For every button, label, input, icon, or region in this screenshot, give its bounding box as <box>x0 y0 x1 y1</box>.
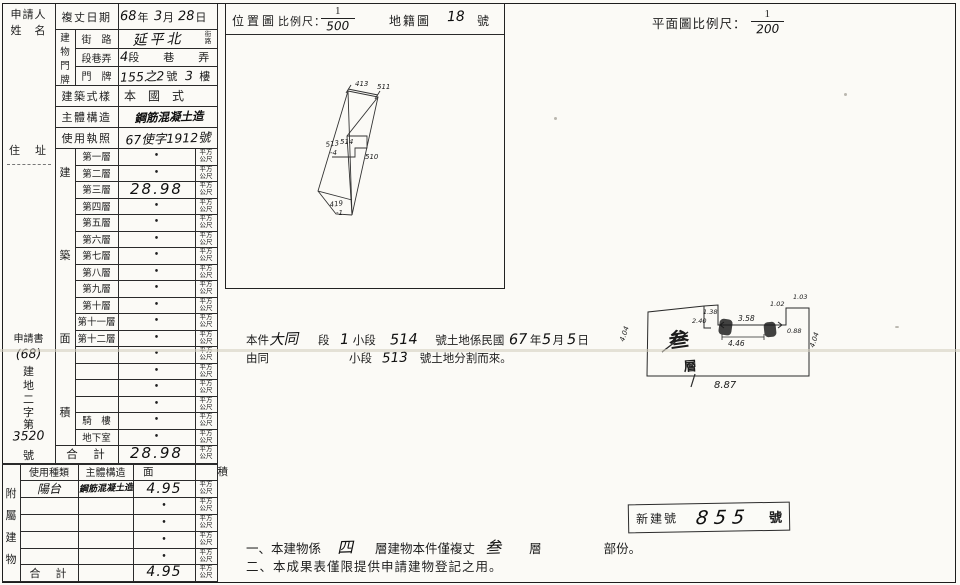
handwritten-entry: 155之2 <box>120 65 165 86</box>
unit-line2: 公尺 <box>195 404 217 411</box>
unit-line1: 平方 <box>195 199 217 206</box>
dimension-label: 8.87 <box>714 380 737 391</box>
area-unit: 平方公尺 <box>195 380 217 395</box>
survey-date-value: 68年3月28日 <box>120 4 218 29</box>
unit-line1: 平方 <box>195 298 217 305</box>
floor-row-label: 第六層 <box>75 231 118 248</box>
area-unit: 平方公尺 <box>195 430 217 445</box>
printed-text: 小段 <box>353 332 376 348</box>
footnote-1: 一、本建物係四層建物本件僅複丈叁層部份。 <box>246 534 641 558</box>
printed-text: 由同 <box>246 350 269 366</box>
footnote-2: 二、本成果表僅限提供申請建物登記之用。 <box>246 556 503 575</box>
floor-row-label: 第十層 <box>75 297 118 314</box>
scale-numerator: 1 <box>321 5 355 19</box>
handwritten-entry: 5 <box>567 332 577 348</box>
street-label: 街 路 <box>75 29 118 48</box>
stamp-label: 新建號 <box>636 510 678 528</box>
area-unit: 平方公尺 <box>195 166 217 181</box>
area-unit: 平方公尺 <box>195 498 217 513</box>
dimension-label: 0.88 <box>787 327 801 335</box>
annex-area-header-left: 面 <box>143 464 154 479</box>
parcel-origin-note-line1: 本件大同段1小段514號土地係民國67年5月5日 <box>246 328 589 346</box>
unit-line2: 公尺 <box>195 338 217 345</box>
unit-line2: 公尺 <box>195 305 217 312</box>
printed-text: 小段 <box>349 350 372 366</box>
table-rule <box>55 85 218 86</box>
handwritten-entry: 3 <box>185 68 193 83</box>
floor-row-label: 第九層 <box>75 280 118 297</box>
printed-text: 本件 <box>246 332 269 348</box>
area-unit: 平方公尺 <box>195 331 217 346</box>
cadastral-sheet-number: 18 <box>447 9 465 26</box>
printed-text: 樓 <box>199 68 210 84</box>
door-number-value: 155之2號3樓 <box>120 66 218 85</box>
area-unit: 平方公尺 <box>195 515 217 530</box>
handwritten-entry: 513 <box>382 350 408 367</box>
unit-line2: 公尺 <box>195 206 217 213</box>
table-rule <box>55 29 218 30</box>
floor-plan-scale: 平面圖比例尺： 1 200 <box>652 8 784 36</box>
parcel-origin-note-line2: 由同小段513號土地分割而來。 <box>246 350 512 366</box>
annex-use-value: 陽台 <box>20 479 79 498</box>
building-style-value: 本 國 式 <box>120 85 222 106</box>
total-value: 28.98 <box>118 443 195 463</box>
area-unit: 平方公尺 <box>195 413 217 428</box>
floor-plan-scale-label: 平面圖比例尺： <box>652 13 747 32</box>
door-plate-label-char: 門 <box>60 58 70 72</box>
street-unit-line2: 路 <box>199 38 217 45</box>
printed-text: 一、本建物係 <box>246 538 321 557</box>
area-unit: 平方公尺 <box>195 532 217 547</box>
street-unit: 街 路 <box>199 31 217 45</box>
area-unit: 平方公尺 <box>195 481 217 496</box>
area-unit: 平方公尺 <box>195 397 217 412</box>
handwritten-entry: 四 <box>337 534 354 559</box>
annex-area-header-right: 積 <box>218 464 229 479</box>
handwritten-entry: 3 <box>153 9 162 24</box>
dimension-label: 3.58 <box>738 314 755 323</box>
handwritten-entry: 叁 <box>485 534 502 559</box>
table-rule <box>55 106 218 107</box>
area-unit: 平方公尺 <box>195 549 217 564</box>
floor-area-empty-dot: • <box>118 427 195 446</box>
handwritten-entry: 4 <box>120 49 129 64</box>
printed-text: 月 <box>553 332 565 348</box>
printed-text: 日 <box>195 9 206 25</box>
area-unit: 平方公尺 <box>195 565 217 580</box>
unit-line2: 公尺 <box>195 522 217 529</box>
table-rule <box>75 48 218 49</box>
unit-line2: 公尺 <box>195 173 217 180</box>
stamp-suffix: 號 <box>769 507 782 526</box>
printed-text: 部份。 <box>604 538 642 557</box>
unit-line2: 公尺 <box>195 239 217 246</box>
unit-line2: 公尺 <box>195 437 217 444</box>
area-unit: 平方公尺 <box>195 265 217 280</box>
area-unit: 平方公尺 <box>195 446 217 462</box>
unit-line2: 公尺 <box>195 539 217 546</box>
area-unit: 平方公尺 <box>195 149 217 164</box>
printed-text: 日 <box>577 332 589 348</box>
floor-row-label: 騎 樓 <box>75 412 118 429</box>
floor-row-label: 第三層 <box>75 181 118 198</box>
parcel-number: 510 <box>365 153 379 161</box>
plan-scale-numerator: 1 <box>751 8 785 22</box>
unit-line2: 公尺 <box>195 288 217 295</box>
table-rule <box>2 463 218 465</box>
cadastral-sketch: 413511513-4514510419-1 <box>311 76 403 226</box>
annex-side-char: 物 <box>2 551 20 567</box>
annex-structure-value: 鋼筋混凝土造 <box>76 477 137 498</box>
applicant-label-line1: 申請人 <box>4 8 53 24</box>
total-label: 合 計 <box>55 445 118 463</box>
printed-text: 弄 <box>198 49 209 65</box>
printed-text: 段 <box>128 49 139 65</box>
area-unit: 平方公尺 <box>195 298 217 313</box>
location-map-panel: 位置圖 比例尺： 1 500 地籍圖 18 號 413511513-451451… <box>225 3 505 289</box>
area-unit: 平方公尺 <box>195 248 217 263</box>
area-unit: 平方公尺 <box>195 199 217 214</box>
area-unit: 平方公尺 <box>195 364 217 379</box>
parcel-number: -1 <box>336 209 343 217</box>
parcel-number: 419 <box>329 199 344 209</box>
cadastral-map-label: 地籍圖 <box>389 12 431 29</box>
floor-row-label: 第十二層 <box>75 330 118 347</box>
unit-line2: 公尺 <box>195 222 217 229</box>
floor-row-label: 第十一層 <box>75 313 118 330</box>
unit-line2: 公尺 <box>195 387 217 394</box>
parcel-number: 413 <box>355 80 368 88</box>
scan-speck <box>895 326 899 328</box>
location-map-title: 位置圖 <box>232 12 277 29</box>
annex-side-char: 附 <box>2 485 20 501</box>
plan-scale-denominator: 200 <box>750 21 784 37</box>
building-style-label: 建築式樣 <box>55 85 118 106</box>
parcel-outline <box>318 85 380 215</box>
handwritten-entry: 514 <box>389 332 417 349</box>
floor-plan-drawing: 2.401.383.581.021.030.884.468.874.044.04… <box>618 290 828 392</box>
area-unit: 平方公尺 <box>195 182 217 197</box>
printed-text: 層建物本件僅複丈 <box>375 538 475 557</box>
survey-date-label: 複丈日期 <box>55 4 118 29</box>
section-lane-value: 4段巷弄 <box>120 48 216 66</box>
unit-line1: 平方 <box>195 331 217 338</box>
floor-row-label: 第七層 <box>75 247 118 264</box>
stamp-number: 855 <box>695 506 752 529</box>
area-unit: 平方公尺 <box>195 232 217 247</box>
location-map-scale-fraction: 1 500 <box>321 5 355 33</box>
floor-area-side-char: 築 <box>55 247 75 263</box>
unit-line1: 平方 <box>195 265 217 272</box>
applicant-name-label: 申請人 姓 名 <box>4 8 53 40</box>
floor-row-label: 地下室 <box>75 429 118 446</box>
dimension-label: 1.38 <box>703 308 717 316</box>
unit-line1: 平方 <box>195 166 217 173</box>
unit-line1: 平方 <box>195 232 217 239</box>
annex-area-header: 面 積 <box>133 463 238 480</box>
dimension-label: 4.04 <box>618 325 630 342</box>
annex-side-char: 屬 <box>2 507 20 523</box>
street-value: 延平北 <box>120 28 197 50</box>
printed-text: 號 <box>166 68 177 84</box>
floor-plan-scale-fraction: 1 200 <box>751 8 785 36</box>
unit-line2: 公尺 <box>195 255 217 262</box>
printed-text: 年 <box>138 9 149 25</box>
unit-line2: 公尺 <box>195 321 217 328</box>
printed-text: 號土地分割而來。 <box>420 350 512 366</box>
doc-number-part: 3520 <box>2 427 55 444</box>
handwritten-entry: 28 <box>178 9 195 25</box>
printed-text: 號土地係民國 <box>435 332 504 348</box>
floor-stamp-level-character: 層 <box>683 359 697 375</box>
table-rule <box>217 4 218 582</box>
annex-side-char: 建 <box>2 529 20 545</box>
printed-text: 層 <box>529 538 542 557</box>
area-unit: 平方公尺 <box>195 314 217 329</box>
parcel-number: 513 <box>325 139 339 149</box>
scan-speck <box>554 117 557 120</box>
floor-row-label: 第五層 <box>75 214 118 231</box>
unit-line1: 平方 <box>195 364 217 371</box>
dimension-label: 4.46 <box>728 339 745 348</box>
floor-row-label: 第八層 <box>75 264 118 281</box>
parcel-number: -4 <box>330 149 337 157</box>
handwritten-entry: 5 <box>542 332 552 348</box>
parcel-number: 514 <box>340 138 353 146</box>
door-plate-label: 建物門牌 <box>55 30 75 85</box>
unit-line2: 公尺 <box>195 556 217 563</box>
unit-line2: 公尺 <box>195 371 217 378</box>
scale-denominator: 500 <box>321 18 355 34</box>
door-number-label: 門 牌 <box>75 66 118 85</box>
table-rule <box>2 581 218 582</box>
parcel-number: 511 <box>377 83 390 91</box>
table-rule <box>75 66 218 67</box>
new-building-number-stamp: 新建號 855 號 <box>628 502 790 534</box>
annex-use-type-header: 使用種類 <box>20 463 78 480</box>
unit-line2: 公尺 <box>195 488 217 495</box>
dimension-label: 1.02 <box>770 300 784 308</box>
unit-line2: 公尺 <box>195 354 217 361</box>
floor-area-side-char: 建 <box>55 164 75 180</box>
table-rule <box>55 127 218 128</box>
floor-area-side-char: 面 <box>55 330 75 346</box>
cadastral-sheet-suffix: 號 <box>477 12 489 29</box>
printed-text: 段 <box>318 332 330 348</box>
unit-line2: 公尺 <box>195 572 217 579</box>
main-structure-label: 主體構造 <box>55 106 118 127</box>
doc-number-part: (68) <box>2 345 55 362</box>
handwritten-entry: 大同 <box>269 328 299 350</box>
unit-line1: 平方 <box>195 430 217 437</box>
area-unit: 平方公尺 <box>195 215 217 230</box>
unit-line2: 公尺 <box>195 420 217 427</box>
dimension-label: 4.04 <box>808 331 820 348</box>
use-license-label: 使用執照 <box>55 127 118 148</box>
floor-row-label: 第四層 <box>75 198 118 215</box>
handwritten-entry: 68 <box>120 9 137 25</box>
door-plate-label-char: 物 <box>60 44 70 58</box>
address-fill-line <box>7 164 51 165</box>
annex-area-empty-dot: • <box>133 547 195 566</box>
unit-line2: 公尺 <box>195 156 217 163</box>
address-label: 住 址 <box>4 142 53 158</box>
area-unit: 平方公尺 <box>195 281 217 296</box>
dimension-label: 1.03 <box>793 293 807 301</box>
building-survey-table: 申請人 姓 名 住 址 複丈日期 68年3月28日 建物門牌 街 路 延平北 街… <box>2 4 218 582</box>
scan-speck <box>844 93 847 96</box>
table-rule <box>75 29 76 85</box>
unit-line2: 公尺 <box>195 453 217 460</box>
location-map-header-rule <box>226 34 504 35</box>
dimension-label: 2.40 <box>692 317 706 325</box>
applicant-label-line2: 姓 名 <box>4 24 53 40</box>
handwritten-entry: 67 <box>509 332 528 349</box>
door-plate-label-char: 建 <box>60 30 70 44</box>
floor-area-side-char: 積 <box>55 404 75 420</box>
table-rule <box>55 4 56 463</box>
section-lane-label: 段巷弄 <box>75 48 118 66</box>
doc-number-part: 申請書 <box>2 330 55 345</box>
door-plate-label-char: 牌 <box>60 72 70 86</box>
printed-text: 月 <box>163 9 174 25</box>
unit-line2: 公尺 <box>195 272 217 279</box>
unit-line2: 公尺 <box>195 189 217 196</box>
unit-line1: 平方 <box>195 397 217 404</box>
annex-total-label: 合 計 <box>20 564 78 581</box>
scanned-building-survey-form: 申請人 姓 名 住 址 複丈日期 68年3月28日 建物門牌 街 路 延平北 街… <box>0 0 960 585</box>
location-map-scale-label: 比例尺： <box>278 13 326 29</box>
floor-row-label: 第一層 <box>75 148 118 165</box>
printed-text: 年 <box>530 332 542 348</box>
floor-row-label: 第二層 <box>75 165 118 182</box>
doc-number-part: 號 <box>2 447 55 463</box>
unit-line2: 公尺 <box>195 505 217 512</box>
handwritten-entry: 1 <box>339 332 349 348</box>
printed-text: 巷 <box>163 49 174 65</box>
